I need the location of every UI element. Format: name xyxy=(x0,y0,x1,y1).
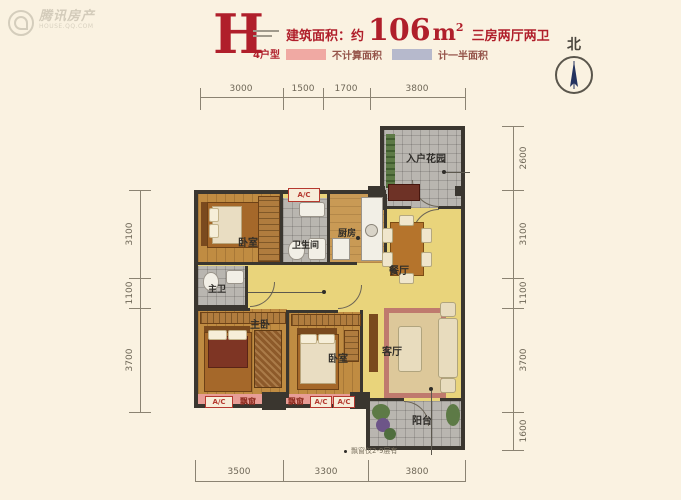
dimension-line-right xyxy=(513,126,514,450)
dimension-tick xyxy=(502,450,524,451)
leader-dot xyxy=(344,450,347,453)
bed-pillow xyxy=(208,330,227,340)
leader-line xyxy=(446,172,470,173)
dim-top-1: 3000 xyxy=(230,84,253,94)
shoe-cabinet xyxy=(388,184,420,201)
dimension-tick xyxy=(368,460,369,482)
legend-label: 不计算面积 xyxy=(332,47,382,62)
bathroom-sink xyxy=(226,270,244,284)
stove-burner xyxy=(365,224,378,237)
dimension-tick xyxy=(195,460,196,482)
dimension-tick xyxy=(502,308,524,309)
leader-line xyxy=(248,292,322,293)
dim-right-4: 3700 xyxy=(519,349,529,372)
label-entry-garden: 入户花园 xyxy=(406,150,446,165)
label-bedroom1: 卧室 xyxy=(238,234,258,249)
wall xyxy=(194,262,284,265)
dim-right-5: 1600 xyxy=(519,420,529,443)
legend-item-no-area: 不计算面积 xyxy=(286,47,382,62)
rug xyxy=(254,330,282,388)
bed-pillow xyxy=(318,334,335,344)
dimension-line-bottom xyxy=(195,481,465,482)
watermark: 腾讯房产 HOUSE.QQ.COM xyxy=(8,10,95,36)
ac-unit-label: A/C xyxy=(288,188,320,202)
wall xyxy=(329,262,357,265)
dim-top-4: 3800 xyxy=(406,84,429,94)
wall xyxy=(286,310,289,398)
layout-description: 三房两厅两卫 xyxy=(472,25,550,44)
wall xyxy=(194,308,250,311)
plant xyxy=(446,404,460,426)
wall xyxy=(245,266,248,306)
side-table xyxy=(440,378,456,393)
floor-note: 飘窗仅2-9层有 xyxy=(351,446,397,456)
side-table xyxy=(440,302,456,317)
label-master-bedroom: 主卧 xyxy=(250,316,270,331)
dimension-tick xyxy=(283,460,284,482)
wall xyxy=(380,126,465,130)
dimension-tick xyxy=(283,88,284,110)
dimension-tick xyxy=(502,412,524,413)
legend-item-half-area: 计一半面积 xyxy=(392,47,488,62)
dining-chair xyxy=(382,228,393,243)
ac-unit-label: A/C xyxy=(333,396,355,408)
north-label: 北 xyxy=(552,34,596,54)
area-summary: 建筑面积：约 106 m 2 三房两厅两卫 xyxy=(286,16,550,46)
wall xyxy=(385,206,411,209)
north-arrow-icon xyxy=(555,56,593,94)
dimension-tick xyxy=(129,278,151,279)
wardrobe xyxy=(200,312,286,324)
sofa xyxy=(438,318,458,378)
label-living: 客厅 xyxy=(382,343,402,358)
bed-pillow xyxy=(300,334,317,344)
dimension-tick xyxy=(129,190,151,191)
dimension-tick xyxy=(370,88,371,110)
leader-line xyxy=(431,391,432,455)
dimension-tick xyxy=(465,88,466,110)
bed-pillow xyxy=(228,330,247,340)
wall xyxy=(461,126,465,450)
dimension-tick xyxy=(502,190,524,191)
area-prefix: 建筑面积：约 xyxy=(286,25,364,44)
dim-left-3: 3700 xyxy=(125,349,135,372)
label-kitchen: 厨房 xyxy=(338,226,356,239)
dimension-tick xyxy=(129,308,151,309)
wall-pier xyxy=(262,392,286,410)
dim-bottom-1: 3500 xyxy=(228,467,251,477)
wall xyxy=(366,398,404,401)
legend-label: 计一半面积 xyxy=(438,47,488,62)
dimension-tick xyxy=(200,88,201,110)
legend-swatch-pink xyxy=(286,49,326,60)
dining-chair xyxy=(421,228,432,243)
bed-pillow xyxy=(209,224,219,238)
ac-unit-label: A/C xyxy=(310,396,332,408)
fridge xyxy=(332,238,350,260)
legend: 不计算面积 计一半面积 xyxy=(286,47,488,62)
area-superscript: 2 xyxy=(456,21,464,34)
bathroom-sink xyxy=(299,202,325,217)
dimension-tick xyxy=(129,412,151,413)
label-balcony: 阳台 xyxy=(412,412,432,427)
type-subtext-decoration xyxy=(253,30,279,32)
wall xyxy=(280,194,283,263)
leader-dot xyxy=(356,236,360,240)
dimension-tick xyxy=(323,88,324,110)
wall xyxy=(194,190,198,408)
plant-strip xyxy=(386,134,395,188)
legend-swatch-blue xyxy=(392,49,432,60)
label-bedroom2: 卧室 xyxy=(328,350,348,365)
compass: 北 xyxy=(552,34,596,94)
bed-pillow xyxy=(209,208,219,222)
area-unit: m xyxy=(433,20,456,46)
dim-left-2: 1100 xyxy=(125,282,135,305)
wall xyxy=(380,126,384,194)
wall xyxy=(283,262,329,265)
plant xyxy=(384,428,396,440)
dining-chair xyxy=(421,252,432,267)
dimension-tick xyxy=(502,278,524,279)
label-dining: 餐厅 xyxy=(389,262,409,277)
wall xyxy=(327,194,330,263)
dim-bottom-3: 3800 xyxy=(406,467,429,477)
dimension-line-top xyxy=(200,97,465,98)
wardrobe xyxy=(258,196,280,262)
wall xyxy=(286,310,338,313)
wall xyxy=(366,404,370,450)
dimension-tick xyxy=(465,460,466,482)
dimension-line-left xyxy=(140,190,141,412)
dim-bottom-2: 3300 xyxy=(315,467,338,477)
dim-left-1: 3100 xyxy=(125,223,135,246)
dim-right-3: 1100 xyxy=(519,282,529,305)
label-master-bath: 主卫 xyxy=(208,282,226,295)
watermark-site: HOUSE.QQ.COM xyxy=(39,23,95,30)
unit-type-label: 4户型 xyxy=(253,46,280,61)
dim-right-2: 3100 xyxy=(519,223,529,246)
tv-cabinet xyxy=(369,314,378,372)
dim-top-2: 1500 xyxy=(292,84,315,94)
leader-dot xyxy=(322,290,326,294)
wall xyxy=(438,206,465,209)
floorplan-page: 腾讯房产 HOUSE.QQ.COM H 4户型 建筑面积：约 106 m 2 三… xyxy=(0,0,681,500)
type-subtext-decoration xyxy=(253,35,272,37)
wall-pier xyxy=(455,186,465,196)
ac-unit-label: A/C xyxy=(205,396,233,408)
tencent-logo-icon xyxy=(8,10,34,36)
wall xyxy=(440,398,465,401)
dim-top-3: 1700 xyxy=(335,84,358,94)
label-bathroom: 卫生间 xyxy=(292,238,319,251)
dining-chair xyxy=(399,215,414,226)
bay-window-label: 飘窗 xyxy=(288,396,304,407)
wardrobe xyxy=(291,314,361,326)
bed-quilt xyxy=(208,336,248,368)
dimension-tick xyxy=(502,126,524,127)
dim-right-1: 2600 xyxy=(519,147,529,170)
watermark-brand: 腾讯房产 xyxy=(39,10,95,23)
bay-window-label: 飘窗 xyxy=(240,396,256,407)
area-value: 106 xyxy=(368,16,431,46)
